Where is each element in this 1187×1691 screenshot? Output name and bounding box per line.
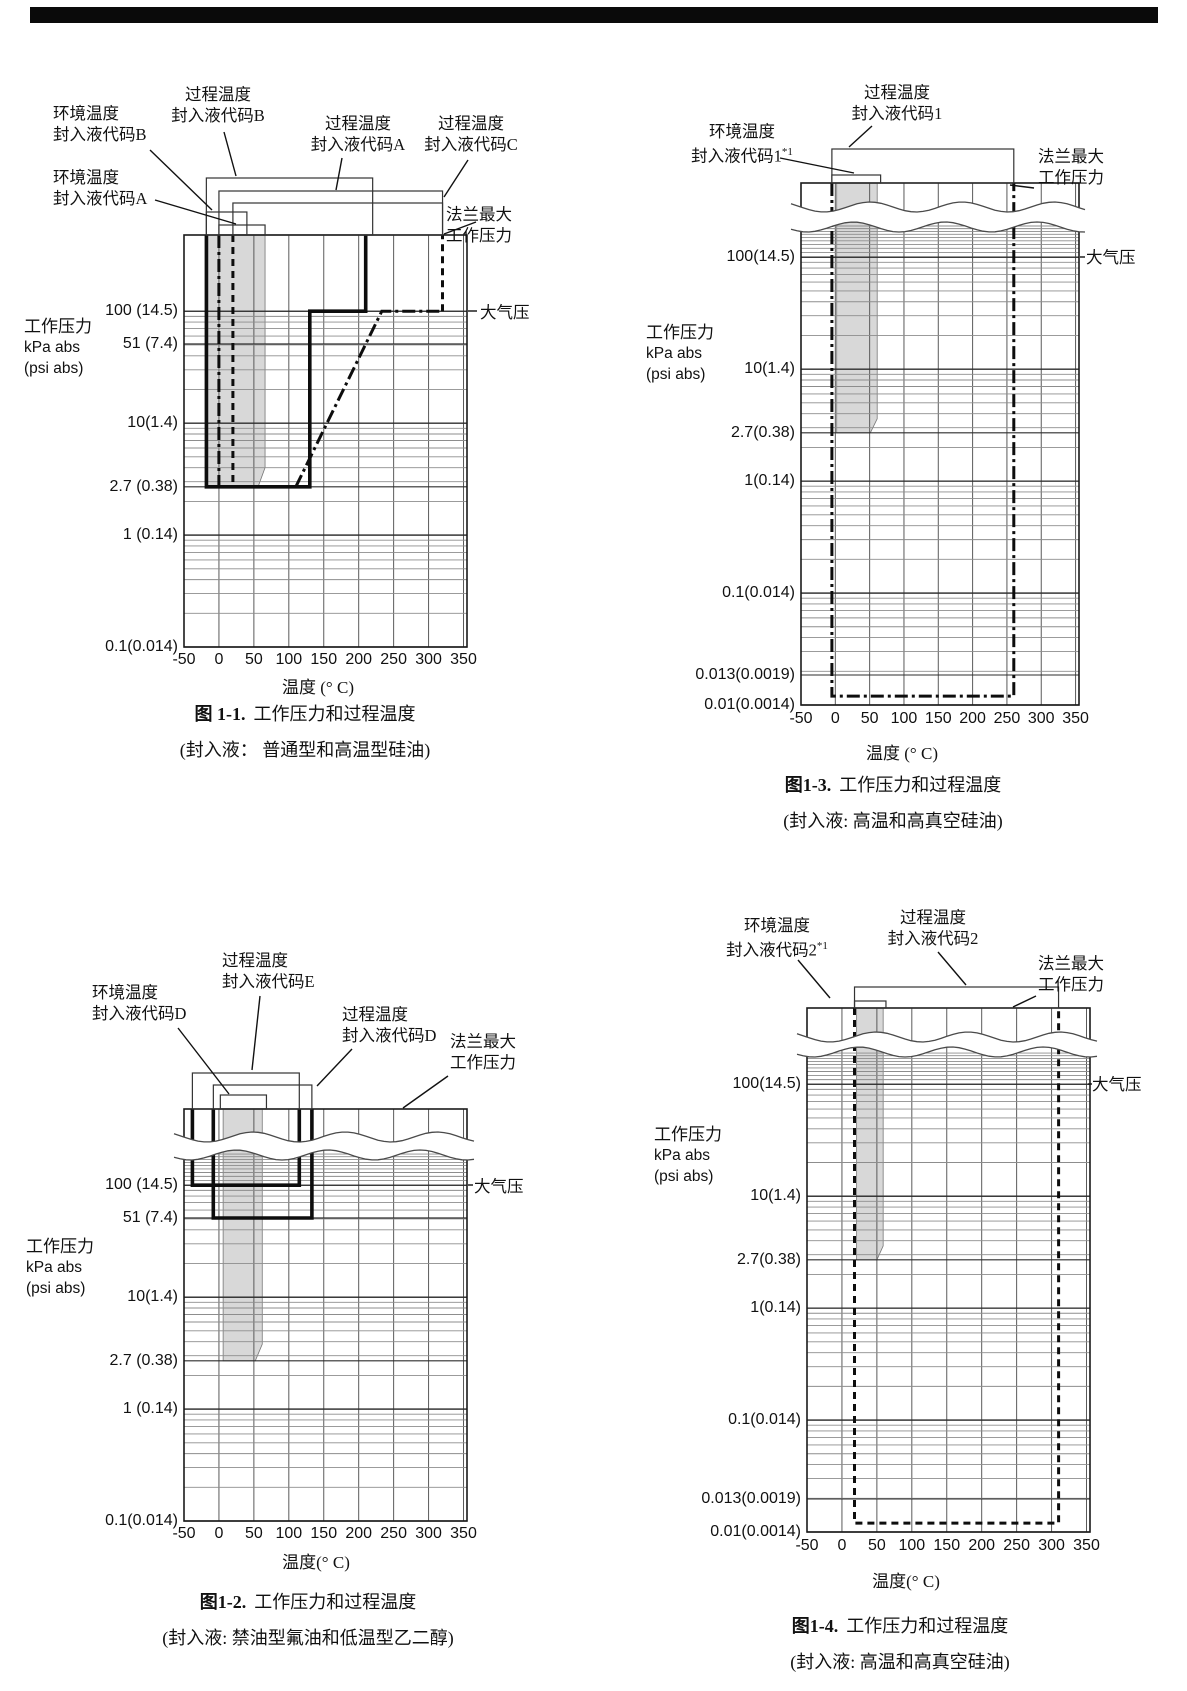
callout-label: 大气压 [480,302,550,323]
figure-title: 工作压力和过程温度 [846,1616,1008,1636]
callout-label: 过程温度封入液代码A [302,113,414,155]
x-axis-label: 温度 (° C) [792,739,1012,764]
x-axis-label: 温度(° C) [206,1548,426,1573]
x-tick-label: 350 [1065,1536,1109,1555]
figure-title: 工作压力和过程温度 [254,1592,416,1612]
y-tick-label: 10(1.4) [38,413,178,432]
callout-label: 法兰最大工作压力 [450,1031,540,1073]
y-axis-unit-line: 工作压力 [26,1236,94,1257]
y-tick-label: 0.01(0.0014) [655,695,795,714]
figure-caption: 图1-3.工作压力和过程温度 [663,774,1123,796]
y-tick-label: 10(1.4) [38,1287,178,1306]
y-tick-label: 51 (7.4) [38,1208,178,1227]
y-axis-unit-line: (psi abs) [654,1166,722,1187]
x-tick-label: 350 [442,650,486,669]
figure-number: 图1-4. [792,1616,839,1636]
callout-label: 法兰最大工作压力 [1038,953,1128,995]
callout-label: 过程温度封入液代码1 [835,82,959,124]
figure-title: 工作压力和过程温度 [839,775,1001,795]
figure-number: 图 1-1. [195,704,246,724]
figure-number: 图1-3. [785,775,832,795]
callout-label: 法兰最大工作压力 [1038,146,1128,188]
y-tick-label: 1 (0.14) [38,1399,178,1418]
x-tick-label: 350 [1054,709,1098,728]
y-tick-label: 1 (0.14) [38,525,178,544]
callout-label: 环境温度封入液代码2*1 [716,915,838,961]
labels-layer: 工作压力 kPa abs (psi abs) 温度 (° C) 图 1-1.工作… [0,0,1187,1691]
x-axis-label: 温度(° C) [796,1567,1016,1592]
x-axis-label: 温度 (° C) [208,673,428,698]
y-axis-unit-line: (psi abs) [24,358,92,379]
figure-caption: 图1-2.工作压力和过程温度 [78,1591,538,1613]
y-tick-label: 2.7 (0.38) [38,477,178,496]
callout-label: 过程温度封入液代码C [415,113,527,155]
callout-label: 环境温度封入液代码A [53,167,165,209]
x-tick-label: 350 [442,1524,486,1543]
figure-title: 工作压力和过程温度 [254,704,416,724]
callout-label: 环境温度封入液代码B [53,103,165,145]
callout-label: 过程温度封入液代码D [342,1004,457,1046]
y-axis-unit-line: 工作压力 [654,1124,722,1145]
callout-label: 过程温度封入液代码2 [872,907,994,949]
y-tick-label: 0.1(0.014) [38,637,178,656]
y-tick-label: 1(0.14) [661,1298,801,1317]
figure-caption: 图 1-1.工作压力和过程温度 [75,703,535,725]
y-tick-label: 2.7(0.38) [655,423,795,442]
y-tick-label: 0.01(0.0014) [661,1522,801,1541]
y-tick-label: 10(1.4) [661,1186,801,1205]
y-tick-label: 0.1(0.014) [38,1511,178,1530]
callout-label: 过程温度封入液代码B [157,84,279,126]
y-tick-label: 51 (7.4) [38,334,178,353]
figure-subcaption: (封入液： 普通型和高温型硅油) [75,739,535,761]
y-tick-label: 0.013(0.0019) [661,1489,801,1508]
callout-label: 大气压 [1092,1074,1162,1095]
y-tick-label: 100(14.5) [655,247,795,266]
y-axis-unit-line: 工作压力 [646,322,714,343]
y-tick-label: 0.1(0.014) [655,583,795,602]
y-tick-label: 100 (14.5) [38,301,178,320]
figure-subcaption: (封入液: 禁油型氟油和低温型乙二醇) [78,1627,538,1649]
y-tick-label: 1(0.14) [655,471,795,490]
manual-page: 工作压力 kPa abs (psi abs) 温度 (° C) 图 1-1.工作… [0,0,1187,1691]
callout-label: 大气压 [474,1176,544,1197]
y-axis-unit-line: kPa abs [26,1257,94,1278]
figure-subcaption: (封入液: 高温和高真空硅油) [663,810,1123,832]
figure-subcaption: (封入液: 高温和高真空硅油) [670,1651,1130,1673]
y-axis-unit-line: kPa abs [654,1145,722,1166]
y-tick-label: 0.1(0.014) [661,1410,801,1429]
callout-label: 环境温度封入液代码1*1 [682,121,802,167]
figure-number: 图1-2. [200,1592,247,1612]
y-axis-unit: 工作压力 kPa abs (psi abs) [654,1124,722,1187]
y-tick-label: 100(14.5) [661,1074,801,1093]
callout-label: 环境温度封入液代码D [92,982,207,1024]
y-tick-label: 2.7(0.38) [661,1250,801,1269]
y-tick-label: 2.7 (0.38) [38,1351,178,1370]
callout-label: 过程温度封入液代码E [222,950,337,992]
callout-label: 大气压 [1086,247,1156,268]
figure-caption: 图1-4.工作压力和过程温度 [670,1615,1130,1637]
y-tick-label: 10(1.4) [655,359,795,378]
callout-label: 法兰最大工作压力 [446,204,536,246]
y-tick-label: 0.013(0.0019) [655,665,795,684]
y-tick-label: 100 (14.5) [38,1175,178,1194]
